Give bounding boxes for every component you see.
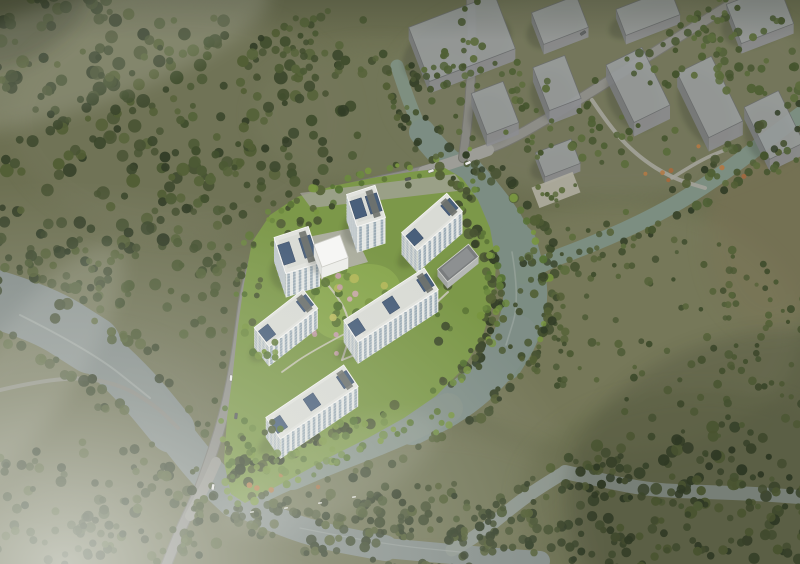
aerial-rendering: Aerial rendering of a riverside resident… bbox=[0, 0, 800, 564]
rendering-canvas: Aerial rendering of a riverside resident… bbox=[0, 0, 800, 564]
fog-bottom-left bbox=[0, 0, 800, 564]
atmosphere-overlay bbox=[0, 0, 800, 564]
